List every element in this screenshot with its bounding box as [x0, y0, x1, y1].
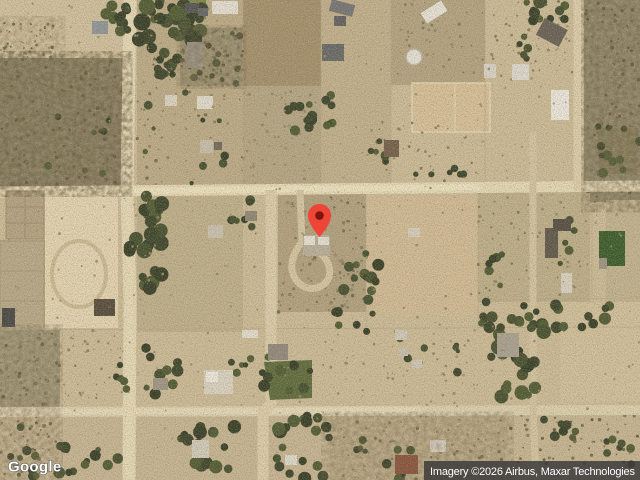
svg-text:Imagery ©2026 Airbus, Maxar Te: Imagery ©2026 Airbus, Maxar Technologies: [430, 466, 635, 478]
svg-text:Google: Google: [8, 459, 61, 476]
